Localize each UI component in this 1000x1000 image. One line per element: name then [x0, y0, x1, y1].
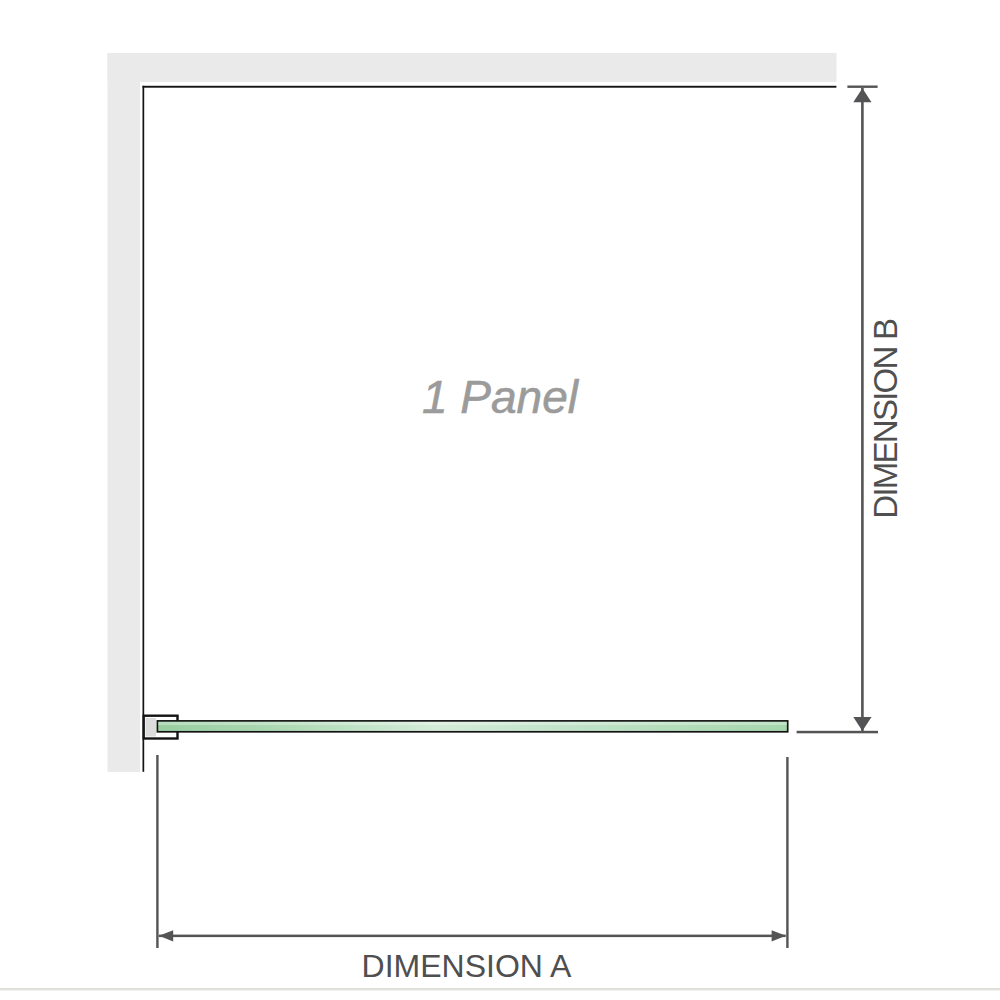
svg-text:DIMENSION A: DIMENSION A [362, 948, 572, 984]
svg-text:DIMENSION B: DIMENSION B [867, 319, 904, 519]
svg-text:1 Panel: 1 Panel [422, 371, 580, 423]
